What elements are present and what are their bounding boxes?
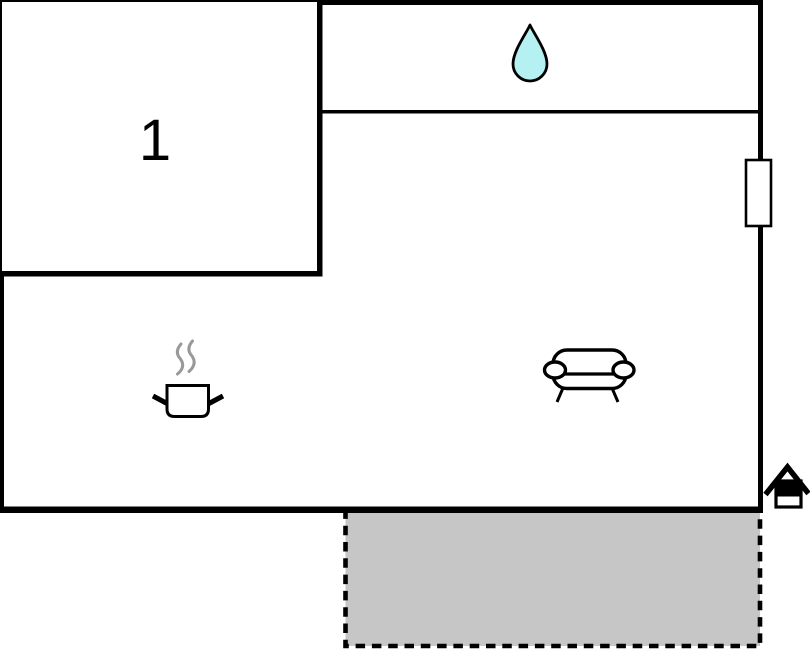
floorplan-canvas: 1 [0, 0, 810, 652]
wall-main-top [317, 0, 763, 5]
window [746, 160, 771, 226]
sofa-armrest-left [545, 362, 566, 378]
walls [0, 0, 763, 513]
wall-interior-partition [322, 110, 758, 114]
wall-main-bottom [0, 507, 763, 514]
water-drop-icon [513, 25, 547, 81]
sofa-leg-left [557, 388, 563, 402]
cooking-pot-icon [153, 341, 223, 417]
pot-body [167, 386, 209, 417]
wall-room1-right [317, 0, 323, 277]
wall-room1-top [0, 0, 320, 2]
steam-icon [177, 344, 182, 374]
room-1-label: 1 [139, 108, 171, 173]
house-entrance-icon [766, 467, 809, 507]
sofa-icon [545, 350, 635, 402]
steam-icon [189, 341, 194, 372]
sofa-armrest-right [613, 362, 634, 378]
wall-room1-left [0, 0, 2, 273]
pot-handle-right [208, 396, 223, 404]
terrace [346, 510, 761, 646]
wall-room1-bottom [0, 271, 323, 277]
wall-main-right [758, 0, 763, 513]
wall-main-left [0, 271, 4, 513]
floorplan: 1 [0, 0, 810, 652]
